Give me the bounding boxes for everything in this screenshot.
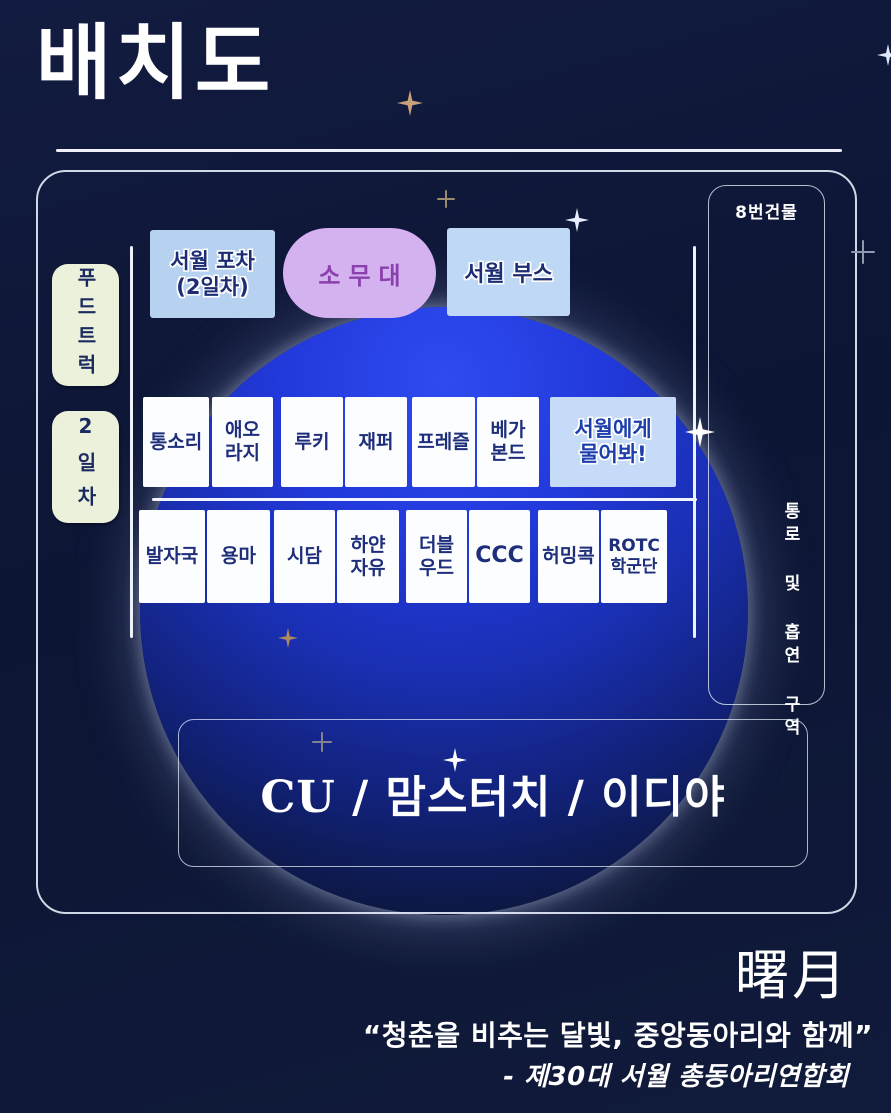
left-guide-line xyxy=(130,246,133,638)
booth-seowol-pocha-line1: 서월 포차 xyxy=(170,248,255,274)
title-underline xyxy=(56,149,842,152)
sparkle-icon xyxy=(397,90,423,116)
corridor-smoking-label: 통로 및 흡연 구역 xyxy=(781,502,798,741)
booth-ask-seowol-line2: 물어봐! xyxy=(579,442,647,467)
booth-yongma: 용마 xyxy=(207,510,270,603)
booth-jaepeo: 재퍼 xyxy=(345,397,407,487)
booth-tongsori: 통소리 xyxy=(143,397,209,487)
booth-aeoraji-line2: 라지 xyxy=(225,442,260,465)
booth-aeoraji-line1: 애오 xyxy=(225,419,260,442)
booth-vagabond-line2: 본드 xyxy=(491,442,526,465)
day2-label: 2일차 xyxy=(52,411,119,523)
layout-map-poster: 배치도 8번건물 통로 및 흡연 구역 푸드트럭 2일차 서월 포차 (2일차)… xyxy=(0,0,891,1113)
booth-rookie: 루키 xyxy=(281,397,343,487)
plus-star-icon xyxy=(312,732,332,752)
booth-rotc: ROTC 학군단 xyxy=(601,510,667,603)
plus-star-icon xyxy=(437,190,455,208)
booth-seowol-pocha-line2: (2일차) xyxy=(176,274,248,300)
stores-zone: CU / 맘스터치 / 이디야 xyxy=(178,719,808,867)
footer-quote: “청춘을 비추는 달빛, 중앙동아리와 함께” xyxy=(363,1014,873,1054)
right-guide-line xyxy=(693,246,696,638)
booth-ask-seowol: 서월에게 물어봐! xyxy=(550,397,676,487)
footer-organization: - 제30대 서월 총동아리연합회 xyxy=(503,1056,849,1093)
booth-sidam: 시담 xyxy=(274,510,335,603)
booth-ccc: CCC xyxy=(469,510,530,603)
small-stage: 소무대 xyxy=(283,228,436,318)
booth-vagabond-line1: 베가 xyxy=(491,419,526,442)
building-8-label: 8번건물 xyxy=(709,198,824,223)
booth-ask-seowol-line1: 서월에게 xyxy=(574,417,651,442)
booth-pretzel: 프레즐 xyxy=(412,397,475,487)
footer-hanja: 曙月 xyxy=(735,946,849,1005)
plus-star-icon xyxy=(851,240,875,264)
stores-label: CU / 맘스터치 / 이디야 xyxy=(260,761,725,825)
building-8-zone: 8번건물 xyxy=(708,185,825,705)
booth-white-freedom: 하얀 자유 xyxy=(337,510,399,603)
booth-doublewood-line1: 더블 xyxy=(419,534,454,557)
booth-aeoraji: 애오 라지 xyxy=(212,397,273,487)
sparkle-icon xyxy=(877,44,891,66)
booth-rotc-line2: 학군단 xyxy=(611,557,658,577)
booth-rotc-line1: ROTC xyxy=(608,536,660,556)
booth-seowol-pocha: 서월 포차 (2일차) xyxy=(150,230,275,318)
booth-hummingkok: 허밍콕 xyxy=(538,510,599,603)
booth-baljaguk: 발자국 xyxy=(139,510,205,603)
row-separator-line xyxy=(152,498,697,501)
booth-white-freedom-line1: 하얀 xyxy=(351,534,386,557)
food-truck-label: 푸드트럭 xyxy=(52,264,119,386)
page-title: 배치도 xyxy=(36,22,274,104)
booth-doublewood-line2: 우드 xyxy=(419,557,454,580)
booth-seowol: 서월 부스 xyxy=(447,228,570,316)
booth-doublewood: 더블 우드 xyxy=(406,510,467,603)
booth-white-freedom-line2: 자유 xyxy=(351,557,386,580)
booth-vagabond: 베가 본드 xyxy=(477,397,539,487)
